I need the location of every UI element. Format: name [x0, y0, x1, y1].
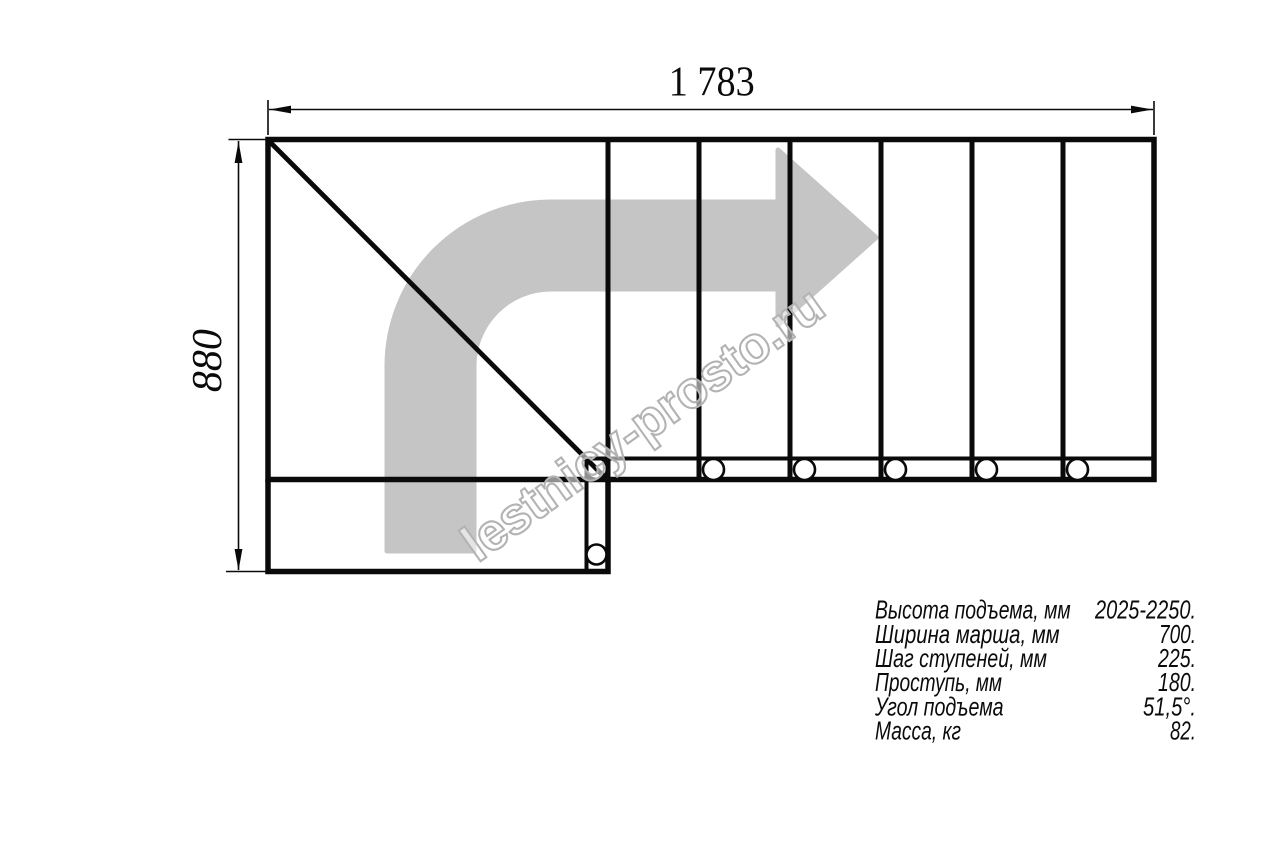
- svg-text:Масса, кг: Масса, кг: [875, 716, 961, 746]
- svg-text:880: 880: [185, 329, 231, 392]
- svg-text:82.: 82.: [1170, 716, 1196, 746]
- svg-text:1 783: 1 783: [669, 60, 755, 106]
